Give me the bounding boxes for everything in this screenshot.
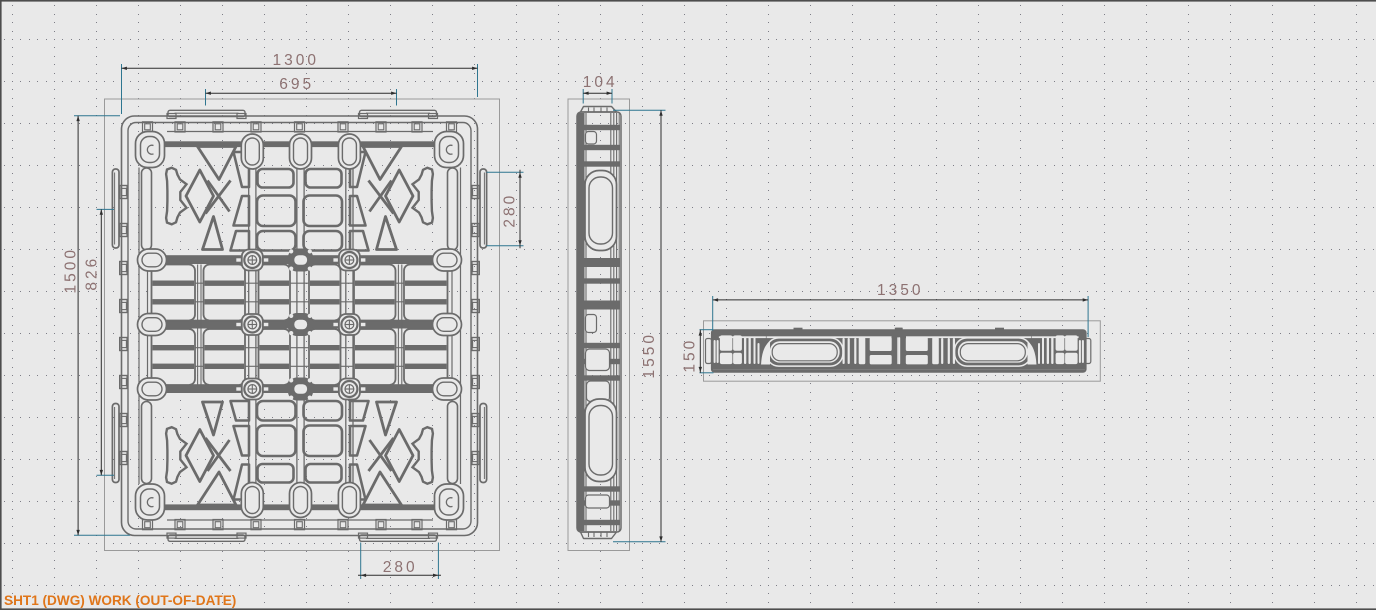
svg-text:280: 280 [502,193,519,228]
svg-text:1550: 1550 [641,332,658,378]
svg-text:695: 695 [279,76,314,93]
svg-text:SHT1 (DWG) WORK (OUT-OF-DATE): SHT1 (DWG) WORK (OUT-OF-DATE) [4,593,236,608]
svg-text:280: 280 [383,559,418,576]
svg-text:1500: 1500 [62,247,79,293]
svg-text:150: 150 [682,338,699,373]
svg-text:1300: 1300 [272,52,318,69]
svg-text:1350: 1350 [877,282,923,299]
svg-text:826: 826 [84,256,101,291]
svg-text:104: 104 [583,74,618,91]
